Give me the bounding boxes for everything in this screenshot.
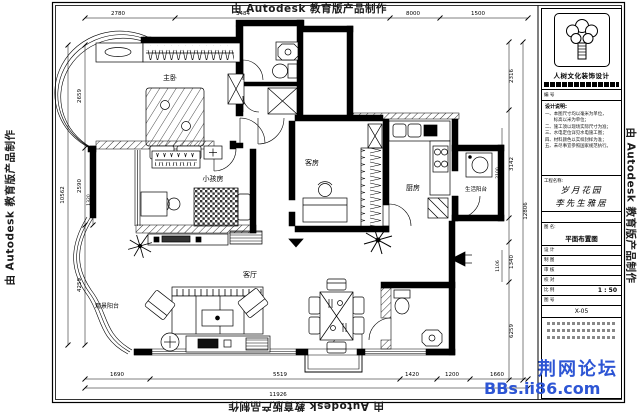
autodesk-watermark-left: 由 Autodesk 教育版产品制作 <box>3 118 18 298</box>
company-logo <box>554 13 610 67</box>
dim-label: 11926 <box>269 392 287 398</box>
armchair <box>144 290 175 321</box>
wall <box>381 282 455 288</box>
dim-label: 10562 <box>60 186 66 204</box>
dim-label: 5519 <box>273 372 287 378</box>
contact-bar <box>544 82 619 87</box>
column-x <box>228 74 244 104</box>
sign-row-label: 设 计 <box>542 245 621 255</box>
markers-layer <box>289 239 472 266</box>
wall <box>230 141 236 149</box>
wall <box>296 349 308 355</box>
wall <box>383 119 389 205</box>
drawing-label: 图 名: <box>542 222 621 232</box>
autodesk-watermark-bottom: 由 Autodesk 教育版产品制作 <box>228 399 384 414</box>
sign-row-label: 校 对 <box>542 275 621 285</box>
door-arc <box>389 204 411 226</box>
note-line: 五、未尽事宜参照国家规范执行。 <box>545 144 618 150</box>
dim-label: 4259 <box>77 278 83 292</box>
room-label-kids: 小孩房 <box>203 174 224 183</box>
forum-watermark-cn: 荆网论坛 <box>538 355 618 381</box>
wall <box>452 196 458 221</box>
notes-title: 设计说明: <box>545 103 618 110</box>
wall <box>452 151 458 171</box>
dim-label: 1320 <box>86 194 92 206</box>
wall <box>134 349 152 355</box>
tree-logo-icon <box>559 17 605 63</box>
dim-label: 1200 <box>445 372 459 378</box>
kitchen-counter <box>389 121 450 218</box>
wall <box>250 149 256 233</box>
door-arc <box>369 318 391 340</box>
room-label-master: 主卧 <box>163 73 177 82</box>
balcony-curve <box>80 218 132 350</box>
autodesk-watermark-top: 由 Autodesk 教育版产品制作 <box>231 1 387 16</box>
dim-label: 8000 <box>406 11 420 17</box>
dim-label: 12806 <box>523 202 529 220</box>
autodesk-watermark-right: 由 Autodesk 教育版产品制作 <box>624 116 639 296</box>
wall <box>243 82 297 86</box>
master-wardrobe <box>96 43 240 62</box>
wall-hatched <box>381 340 391 349</box>
dim-label: 2659 <box>77 89 83 103</box>
drawing-no-label: 图 号 <box>542 295 571 305</box>
wall <box>452 145 504 151</box>
room-label-guest: 客房 <box>305 158 319 167</box>
balcony-curve <box>77 218 130 352</box>
wall <box>289 212 295 226</box>
guest-desk <box>303 182 347 222</box>
dining-set <box>309 279 364 353</box>
dim-label: 2780 <box>111 11 125 17</box>
door-arc <box>243 60 263 80</box>
wall <box>303 26 353 32</box>
guest-wardrobe <box>361 148 383 228</box>
room-label-living: 客厅 <box>243 270 257 279</box>
dim-label: 2100 <box>495 167 501 179</box>
wall <box>498 145 504 221</box>
design-notes: 设计说明: 一、本图尺寸均以毫米为单位， 标高以米为单位； 二、施工须以现场实际… <box>542 101 621 176</box>
wall <box>236 20 304 26</box>
code-row: 编 号 <box>542 89 621 101</box>
spacer-row <box>542 211 621 222</box>
signature-table: 设 计 制 图 审 核 校 对 <box>542 245 621 285</box>
door-arc <box>243 96 259 112</box>
kids-desk <box>141 192 180 216</box>
tiny-text-line <box>547 322 616 325</box>
dim-label: 1340 <box>509 255 515 269</box>
project-name-2: 李先生雅居 <box>542 198 621 211</box>
fridge <box>428 198 448 218</box>
scale-label: 比 例 <box>542 285 571 295</box>
wall <box>357 349 365 355</box>
dim-label: 1420 <box>405 372 419 378</box>
bathroom2-fixtures <box>394 290 442 346</box>
floorplan-page: 2780 3484 8000 1500 2659 2590 1320 4259 … <box>0 0 640 415</box>
wall-hatched <box>381 288 391 318</box>
column-x <box>368 124 382 148</box>
room-label-kitchen: 厨房 <box>406 183 420 192</box>
dim-label: 2316 <box>509 69 515 83</box>
project-label: 工程名称: <box>542 176 621 185</box>
company-name: 人树文化装饰设计 <box>542 69 621 81</box>
side-table <box>161 333 179 351</box>
door-arc <box>458 196 480 218</box>
wall <box>426 349 455 355</box>
kids-bed <box>194 188 250 226</box>
room-label-service-balcony: 生活阳台 <box>465 185 488 193</box>
wall <box>236 143 243 148</box>
elevation-marker <box>289 239 303 247</box>
sign-row-label: 制 图 <box>542 255 621 265</box>
project-name-1: 岁月花园 <box>542 185 621 198</box>
master-bed <box>146 88 222 159</box>
title-block: 人树文化装饰设计 编 号 设计说明: 一、本图尺寸均以毫米为单位， 标高以米为单… <box>541 8 622 399</box>
dim-label: 1690 <box>110 372 124 378</box>
tiny-text-line <box>547 336 616 339</box>
sign-row-label: 审 核 <box>542 265 621 275</box>
scale-table: 比 例 1 : 50 图 号 <box>542 285 621 305</box>
drawing-name: 平面布置图 <box>542 232 621 245</box>
tv-cabinet <box>186 336 270 352</box>
bathroom-fixtures <box>268 42 298 114</box>
wall <box>143 37 240 43</box>
dim-label: 3142 <box>509 157 515 171</box>
footer-cell <box>542 317 621 342</box>
door-arc <box>240 118 265 143</box>
room-label-view-balcony: 观景阳台 <box>95 302 119 310</box>
dim-label: 1500 <box>471 11 485 17</box>
washing-machine <box>466 153 492 177</box>
kids-wardrobe <box>152 151 200 168</box>
wall <box>295 115 383 121</box>
drawing-number: X-05 <box>542 305 621 317</box>
wall <box>289 121 295 200</box>
scale-value: 1 : 50 <box>571 285 621 295</box>
dim-label: 1106 <box>495 260 501 272</box>
wall <box>297 20 303 120</box>
entry-recess <box>308 355 359 369</box>
wall <box>347 26 353 116</box>
forum-watermark-url: BBs.ii86.com <box>484 379 600 398</box>
dim-label: 6259 <box>509 324 515 338</box>
dim-label: 2590 <box>77 179 83 193</box>
entry-recess <box>305 355 362 372</box>
dim-label: 1660 <box>490 372 504 378</box>
tiny-text-line <box>547 329 616 332</box>
